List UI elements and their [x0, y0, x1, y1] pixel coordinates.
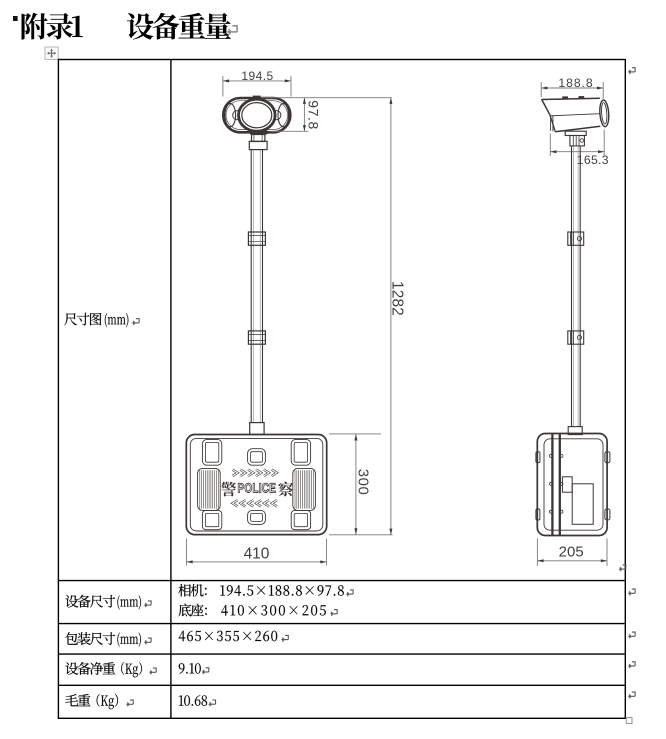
svg-text:410: 410	[244, 546, 270, 563]
svg-text:97.8: 97.8	[305, 100, 321, 130]
svg-text:205: 205	[559, 544, 584, 561]
svg-text:188.8: 188.8	[558, 76, 593, 90]
svg-text:165.3: 165.3	[577, 153, 609, 167]
svg-text:194.5: 194.5	[241, 69, 273, 83]
svg-text:300: 300	[354, 469, 371, 496]
svg-text:1282: 1282	[388, 281, 405, 316]
